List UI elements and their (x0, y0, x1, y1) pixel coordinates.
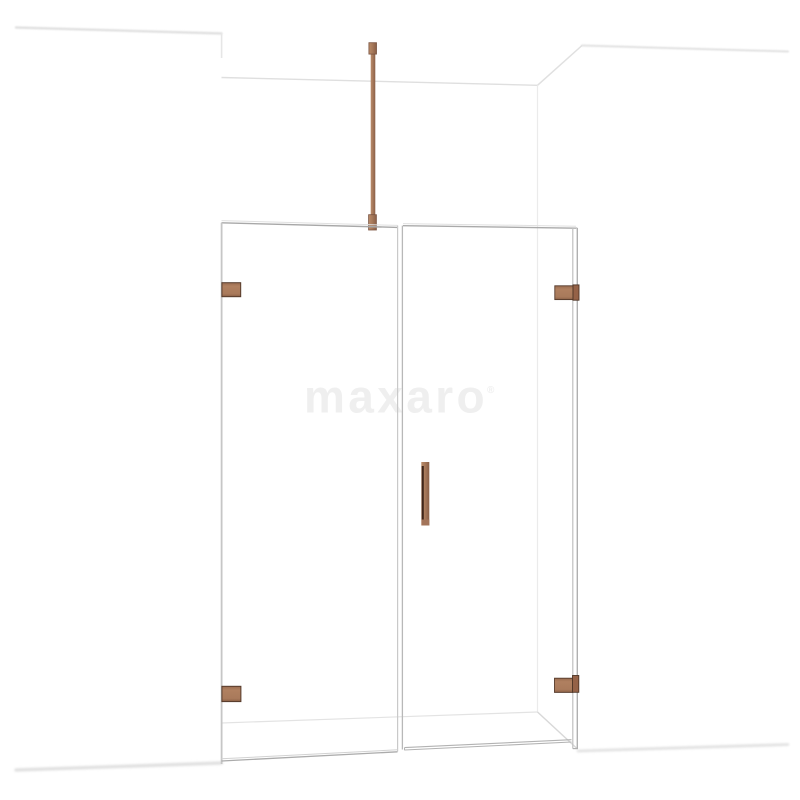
svg-text:maxaro: maxaro (304, 371, 488, 423)
svg-text:®: ® (487, 385, 495, 396)
